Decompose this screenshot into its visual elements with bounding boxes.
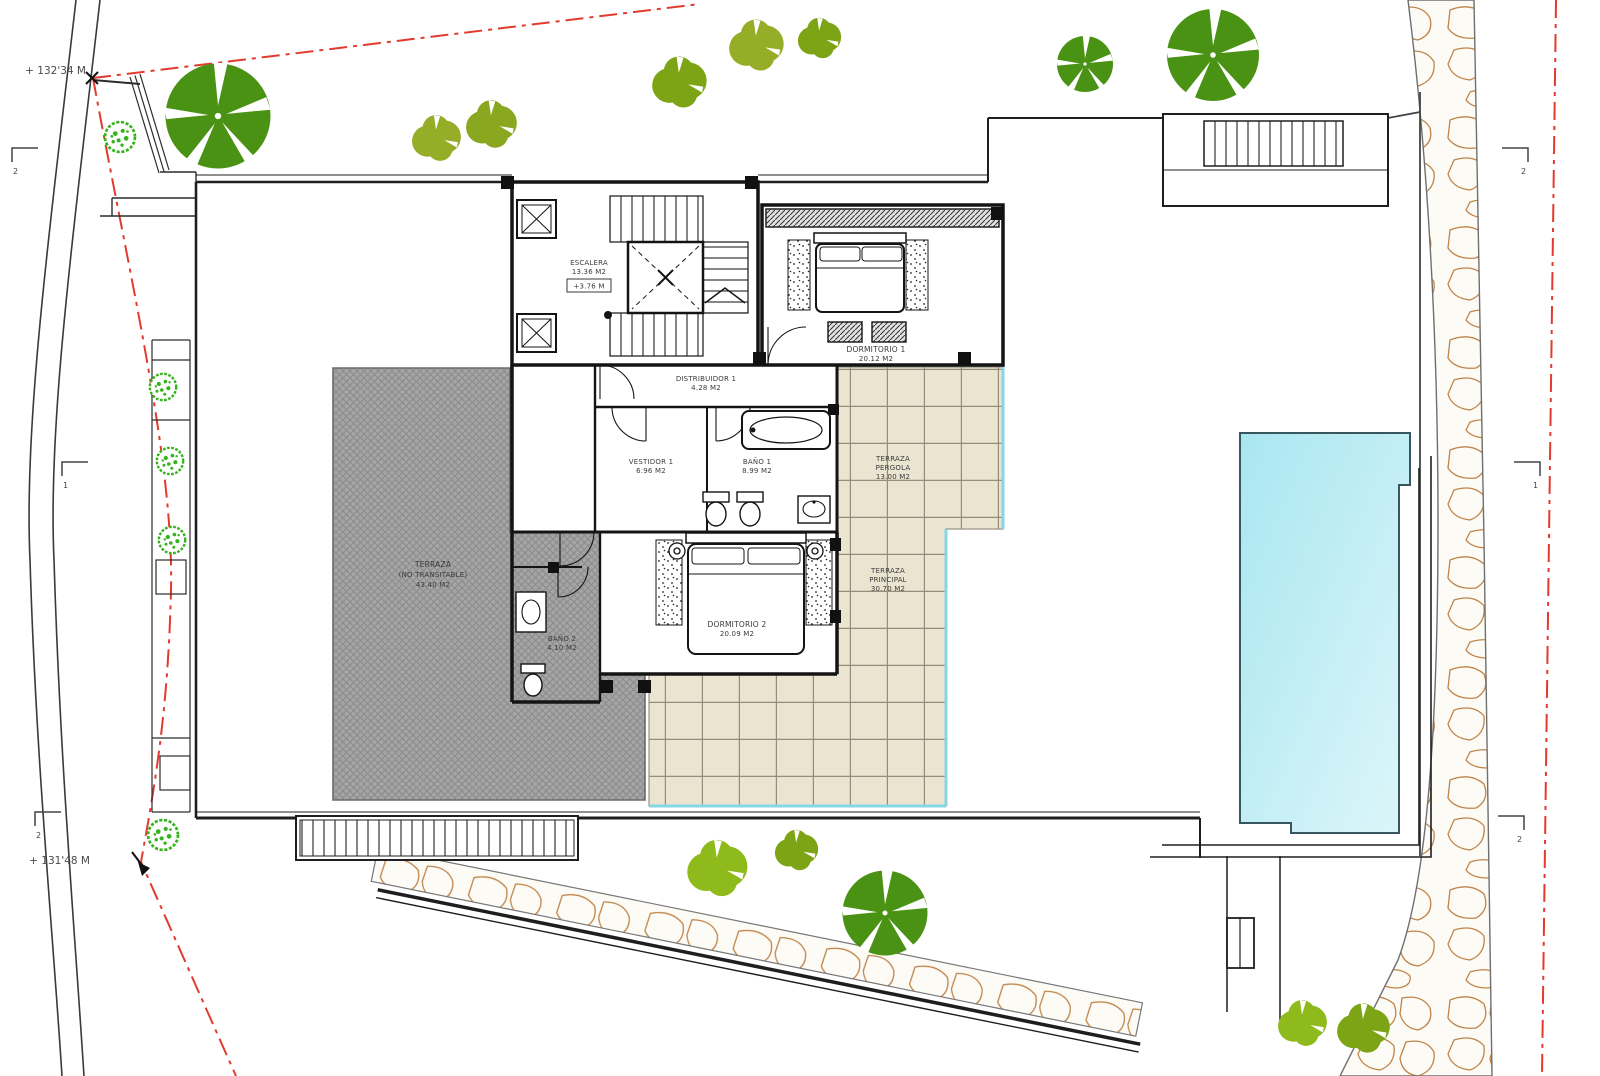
- svg-text:2: 2: [1521, 167, 1526, 176]
- svg-text:4.28 M2: 4.28 M2: [691, 384, 721, 392]
- svg-text:2: 2: [13, 167, 18, 176]
- stair-run-right: [703, 242, 748, 313]
- room-label-terraza-pergola: TERRAZA: [875, 455, 910, 463]
- stair-core: ESCALERA 13.36 M2 +3.76 M: [512, 182, 758, 365]
- room-label-terraza-principal: TERRAZA: [870, 567, 905, 575]
- svg-text:30.70 M2: 30.70 M2: [871, 585, 905, 593]
- washbasin: [798, 496, 830, 523]
- stair-run-bottom: [610, 313, 703, 356]
- pool-side-post: [1227, 918, 1254, 968]
- boundary-left: [93, 78, 236, 1076]
- bush-icon: [798, 18, 841, 58]
- bench: [828, 322, 862, 342]
- bed-double: [788, 233, 928, 312]
- room-label-vestidor1: VESTIDOR 1: [629, 458, 673, 466]
- shrub-mosaic-icon: [148, 820, 178, 850]
- bush-icon: [687, 840, 747, 896]
- stair-run-top: [610, 196, 703, 242]
- boundary-right: [1542, 0, 1556, 1076]
- bedroom-2: DORMITORIO 2 20.09 M2: [656, 533, 832, 654]
- svg-text:PERGOLA: PERGOLA: [876, 464, 911, 472]
- shrub-mosaic-icon: [157, 448, 183, 474]
- bidet: [737, 492, 763, 526]
- bush-icon: [775, 830, 818, 870]
- stone-path-bottom: [368, 848, 1148, 1052]
- site-plan-canvas: TERRAZA (NO TRANSITABLE) 43.40 M2 TERRAZ…: [0, 0, 1600, 1076]
- svg-text:(NO TRANSITABLE): (NO TRANSITABLE): [399, 571, 468, 579]
- tub-faucet-icon: [751, 428, 756, 433]
- pillow: [820, 247, 860, 261]
- shrub-mosaic-icon: [105, 122, 135, 152]
- headboard: [814, 233, 906, 243]
- tree-icon: [164, 62, 270, 168]
- survey-arrow-icon: [138, 862, 150, 876]
- pillow: [748, 548, 800, 564]
- svg-text:+3.76 M: +3.76 M: [573, 283, 604, 291]
- pillow: [692, 548, 744, 564]
- bedside-rug: [906, 240, 928, 310]
- svg-text:4.10 M2: 4.10 M2: [547, 644, 577, 652]
- boundary-top: [93, 4, 700, 78]
- svg-text:43.40 M2: 43.40 M2: [416, 581, 450, 589]
- stair-void: [628, 242, 703, 313]
- roof-terrace-gray: TERRAZA (NO TRANSITABLE) 43.40 M2: [333, 368, 645, 800]
- svg-text:2: 2: [1517, 835, 1522, 844]
- room-label-distribuidor: DISTRIBUIDOR 1: [676, 375, 736, 383]
- tree-icon: [1056, 35, 1113, 92]
- shrub-mosaic-icon: [159, 527, 185, 553]
- svg-text:13.36 M2: 13.36 M2: [572, 268, 606, 276]
- room-label-bano1: BAÑO 1: [743, 457, 771, 466]
- svg-text:2: 2: [36, 831, 41, 840]
- stairs-bottom-left: [296, 816, 578, 860]
- tree-icon: [842, 870, 928, 956]
- bush-icon: [1278, 1000, 1327, 1046]
- bedroom-1: DORMITORIO 1 20.12 M2: [762, 205, 1003, 365]
- tree-icon: [1166, 8, 1259, 101]
- bush-icon: [466, 100, 517, 148]
- svg-text:13.00 M2: 13.00 M2: [876, 473, 910, 481]
- left-retaining-wall: [152, 340, 190, 812]
- svg-text:1: 1: [63, 481, 68, 490]
- stairs-top-right: [1163, 114, 1388, 206]
- shrub-mosaic-icon: [150, 374, 176, 400]
- door-vestidor: [612, 407, 646, 441]
- svg-text:PRINCIPAL: PRINCIPAL: [869, 576, 907, 584]
- headboard: [686, 533, 806, 543]
- svg-text:8.99 M2: 8.99 M2: [742, 467, 772, 475]
- svg-text:6.96 M2: 6.96 M2: [636, 467, 666, 475]
- pergola-louvers: [766, 209, 999, 227]
- svg-text:+ 132'34 M: + 132'34 M: [25, 65, 86, 77]
- pillow: [862, 247, 902, 261]
- svg-text:1: 1: [1533, 481, 1538, 490]
- road-edges: [29, 0, 100, 1076]
- bench: [872, 322, 906, 342]
- bush-icon: [729, 19, 784, 70]
- swimming-pool: [1150, 433, 1431, 857]
- svg-text:+ 131'48 M: + 131'48 M: [29, 855, 90, 867]
- room-label-cubierta: TERRAZA: [414, 560, 452, 569]
- elevation-marker-top: + 132'34 M: [25, 65, 98, 84]
- svg-text:20.09 M2: 20.09 M2: [720, 630, 754, 638]
- bush-icon: [412, 115, 461, 161]
- bush-icon: [652, 56, 707, 107]
- bathroom-1: VESTIDOR 1 6.96 M2 BAÑO 1 8.99 M2 DISTRI…: [629, 375, 830, 526]
- room-label-dormitorio2: DORMITORIO 2: [708, 620, 767, 629]
- room-label-escalera: ESCALERA: [570, 259, 608, 267]
- bedside-rug: [788, 240, 810, 310]
- svg-text:20.12 M2: 20.12 M2: [859, 355, 893, 363]
- room-label-dormitorio1: DORMITORIO 1: [847, 345, 906, 354]
- right-site-wall-top: [1388, 112, 1420, 118]
- door-corridor: [600, 365, 634, 399]
- washbasin: [516, 592, 546, 632]
- room-label-bano2: BAÑO 2: [548, 634, 576, 643]
